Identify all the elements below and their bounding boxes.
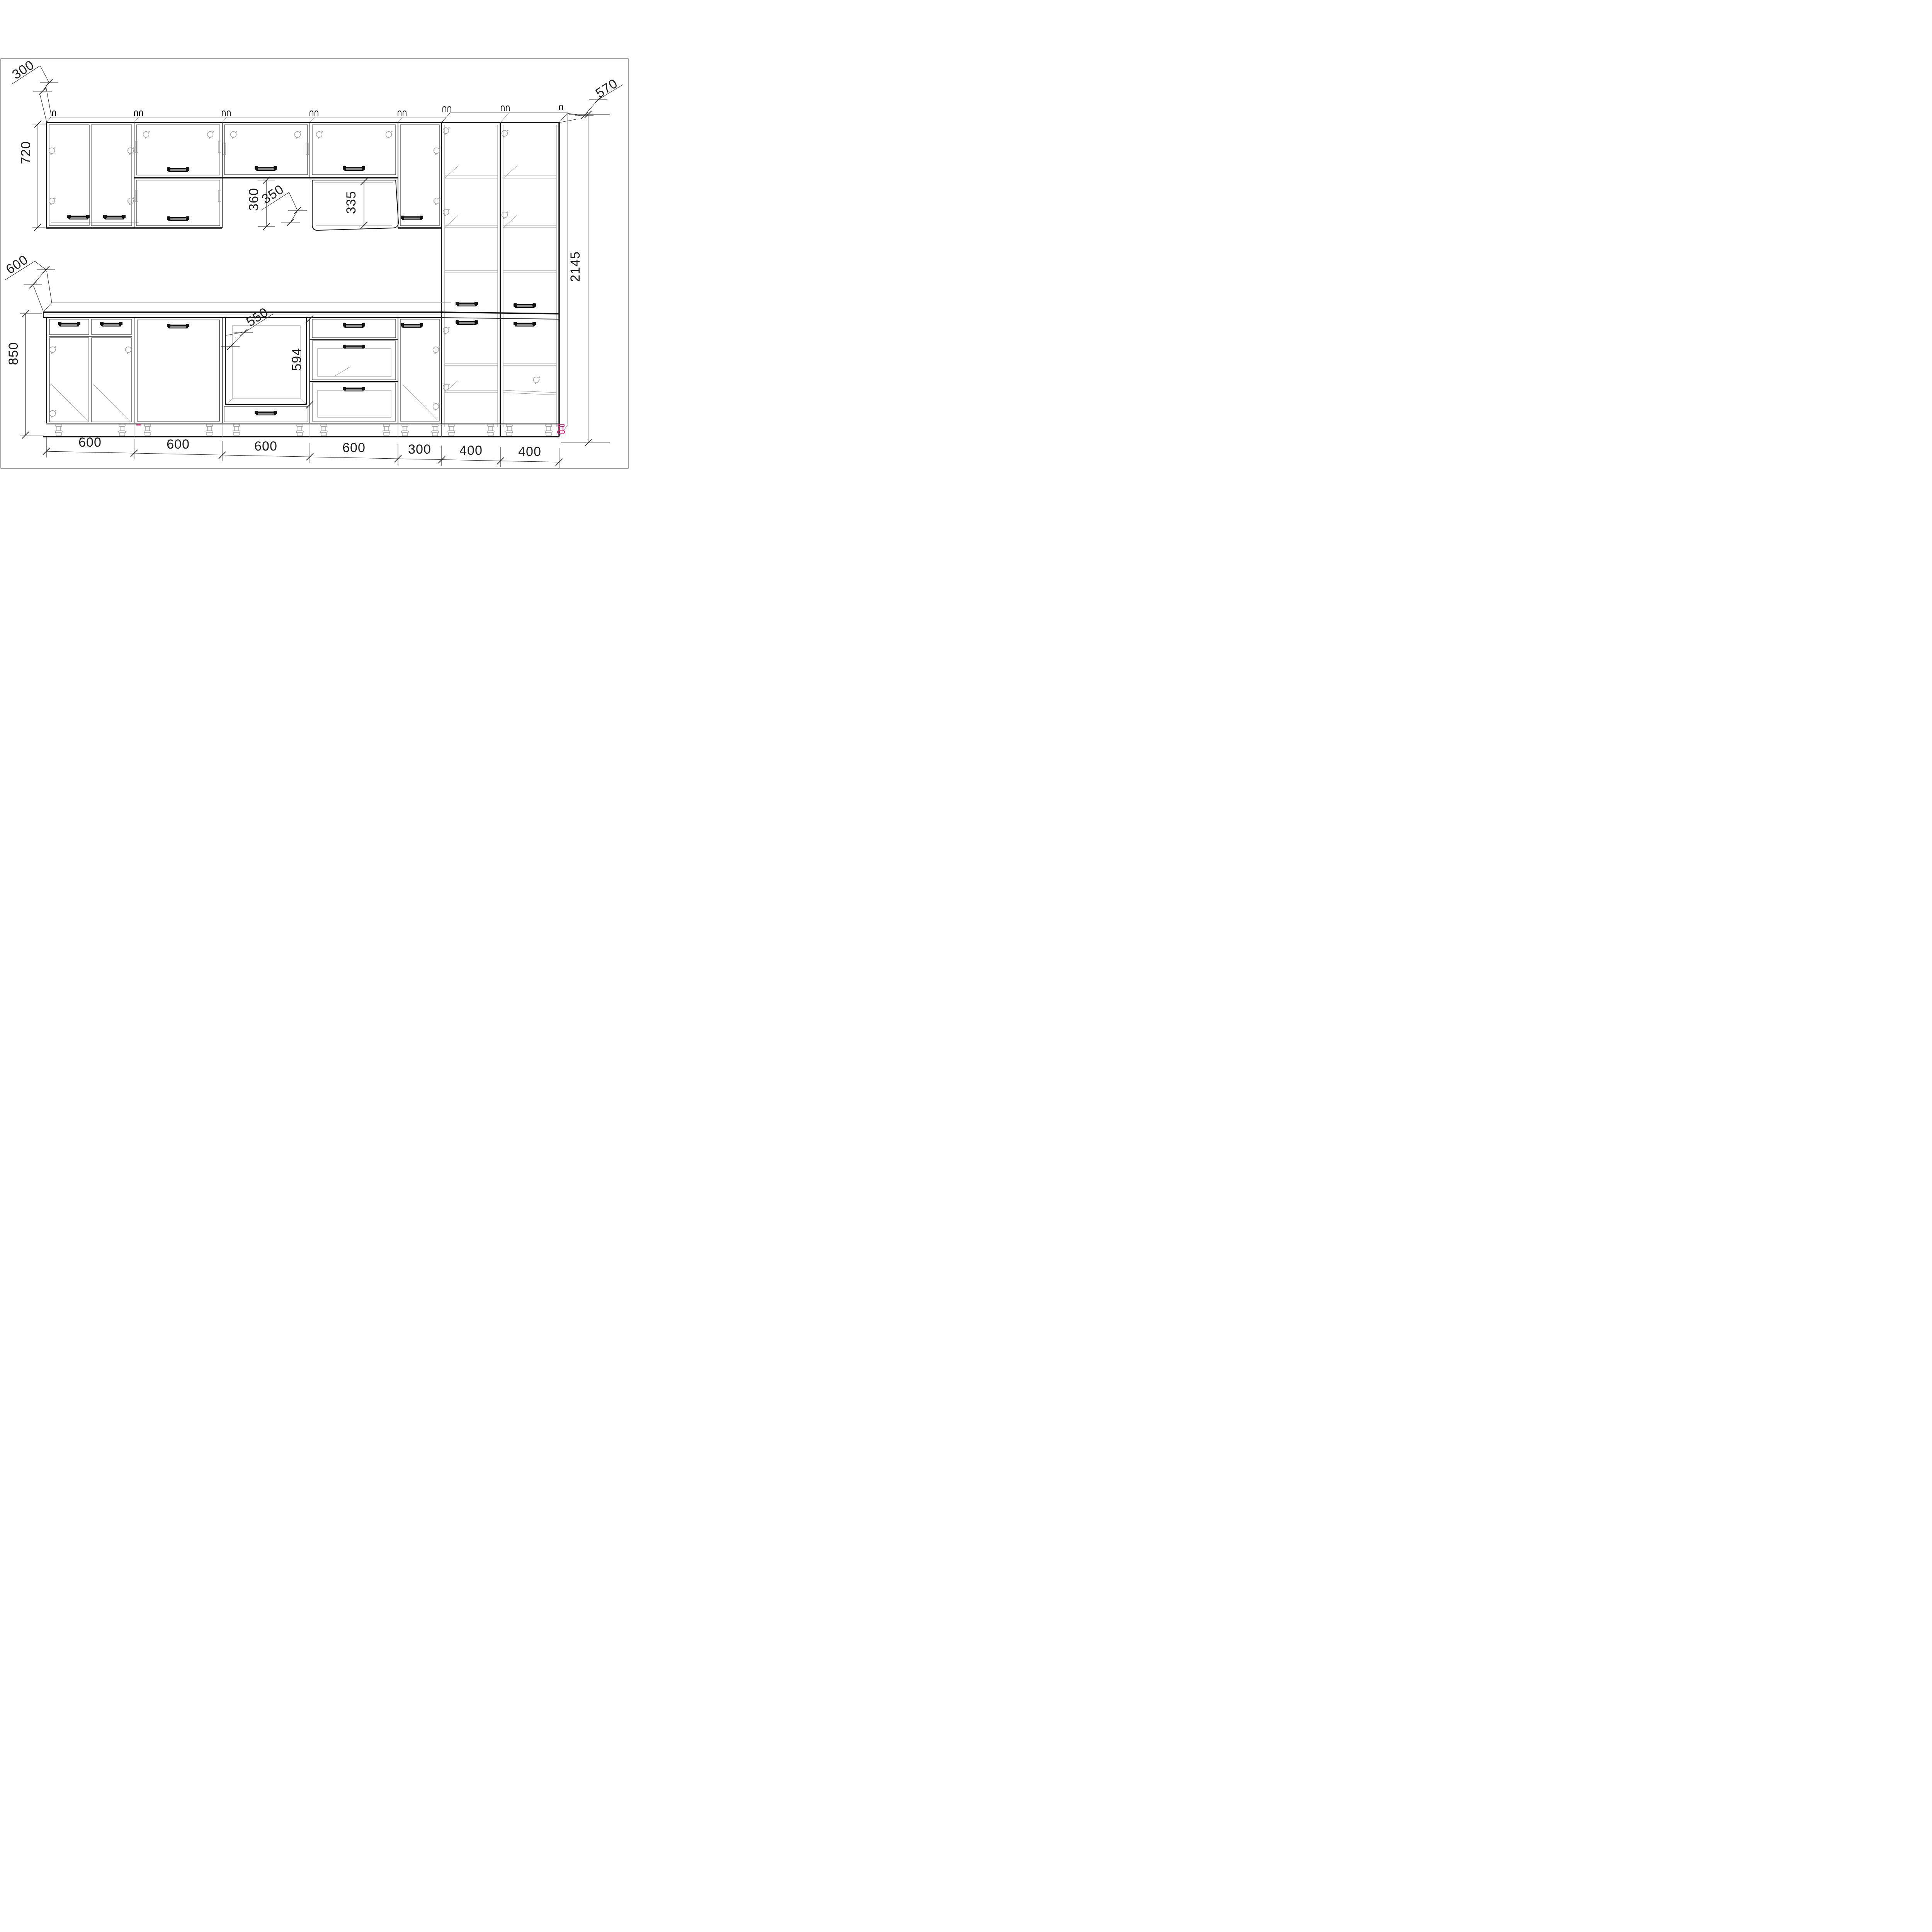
- mounting-hook-icon: [315, 111, 318, 116]
- leg-icon: [506, 424, 513, 436]
- dim-hood-depth: 350: [259, 182, 287, 207]
- hinge-icon: [502, 130, 509, 137]
- hinge-icon: [386, 131, 393, 138]
- door-handle: [103, 215, 126, 219]
- mounting-hook-icon: [222, 111, 225, 116]
- appliance-handle: [167, 324, 189, 328]
- mounting-hook-icon: [506, 106, 509, 111]
- mounting-hook-icon: [448, 107, 451, 112]
- flip-door-handle: [343, 166, 365, 171]
- mounting-hook-icon: [398, 111, 401, 116]
- drawer-handle: [58, 322, 80, 327]
- hinge-icon: [128, 147, 134, 155]
- door-handle: [401, 323, 423, 328]
- flip-door-handle: [255, 166, 277, 171]
- leg-icon: [119, 424, 126, 436]
- dimension-bottom-widths: 600 600 600 600 300 400 400: [43, 435, 563, 468]
- drawing-canvas: 300 720 360 350: [0, 0, 629, 515]
- hinge-icon: [295, 131, 301, 138]
- dim-oven-niche-width: 550: [244, 305, 271, 330]
- tall-unit-2: [502, 122, 568, 437]
- leg-icon: [487, 424, 494, 436]
- base-cabinet-5-narrow: [400, 319, 440, 421]
- flip-door-handle: [167, 167, 189, 172]
- leg-icon: [55, 424, 62, 436]
- base-cabinet-2-dishwasher: [136, 320, 219, 425]
- hinge-icon: [50, 346, 56, 354]
- hinge-icon: [207, 131, 214, 138]
- dimension-base-depth: 600: [3, 252, 55, 311]
- dim-oven-niche-height: 594: [289, 348, 304, 371]
- leg-icon: [383, 424, 390, 436]
- dim-width-3: 600: [254, 439, 277, 454]
- hinge-icon: [231, 131, 237, 138]
- dim-total-height: 2145: [568, 251, 583, 282]
- drawer-handle: [343, 387, 365, 391]
- tall-unit-1: [442, 113, 568, 437]
- dim-width-7: 400: [518, 444, 541, 459]
- hinge-icon: [143, 131, 150, 138]
- tall-door-handle: [514, 303, 536, 308]
- dimension-base-height: 850: [6, 310, 44, 439]
- wall-cabinet-3-hood: [222, 122, 398, 178]
- hinge-icon: [433, 403, 440, 410]
- hinge-icon: [502, 211, 509, 219]
- mounting-hook-icon: [134, 111, 138, 116]
- dim-flip-door-height: 335: [344, 191, 359, 214]
- door-handle: [401, 216, 423, 220]
- base-cabinet-4-drawers: [310, 319, 398, 421]
- tall-door-handle: [456, 302, 478, 306]
- dimension-hood-depth: 350: [259, 182, 307, 226]
- mounting-hook-icon: [403, 111, 406, 116]
- dim-width-4: 600: [342, 440, 366, 455]
- mounting-hook-icon: [501, 106, 504, 111]
- wall-cabinet-row: [46, 111, 559, 230]
- dim-hood-gap: 360: [247, 188, 261, 211]
- tall-cabinet-columns: [442, 105, 568, 437]
- dimension-oven-niche-height: 594: [289, 316, 313, 408]
- drawing-frame: [1, 59, 628, 468]
- mounting-hook-icon: [443, 107, 446, 112]
- dimension-total-height: 2145: [561, 111, 610, 446]
- leg-icon: [320, 424, 327, 436]
- dim-wall-depth: 300: [10, 58, 37, 82]
- dim-tall-depth: 570: [593, 76, 621, 101]
- hinge-icon: [443, 127, 450, 134]
- flip-door-handle: [167, 216, 189, 221]
- dim-width-2: 600: [167, 437, 190, 452]
- mounting-hook-icon: [227, 111, 230, 116]
- dim-wall-height: 720: [19, 141, 33, 164]
- hinge-icon: [50, 410, 56, 417]
- hinge-icon: [126, 346, 132, 354]
- technical-drawing: 300 720 360 350: [0, 0, 629, 515]
- dim-base-height: 850: [6, 342, 21, 365]
- leg-icon: [432, 424, 439, 436]
- leg-icon: [144, 424, 151, 436]
- dimension-oven-niche-width: 550: [221, 305, 273, 350]
- base-cabinet-1-doors-drawer: [49, 319, 132, 422]
- drawer-handle: [100, 322, 122, 327]
- mounting-hook-icon: [53, 111, 56, 116]
- hinge-icon: [443, 209, 450, 216]
- leg-icon: [233, 424, 240, 436]
- plinth: [43, 424, 559, 437]
- dimension-tall-depth: 570: [559, 76, 623, 122]
- leg-icon: [206, 424, 213, 436]
- hinge-icon: [316, 131, 323, 138]
- mounting-hook-icon: [560, 105, 563, 110]
- mounting-hook-icon: [310, 111, 313, 116]
- hinge-icon: [433, 346, 440, 354]
- wall-cabinet-2-flip-doors: [134, 122, 222, 228]
- wall-cabinet-5-narrow: [398, 122, 442, 228]
- tall-door-handle: [514, 322, 536, 327]
- leg-icon: [448, 424, 455, 436]
- dim-width-6: 400: [459, 443, 483, 458]
- dimension-flip-door-height: 335: [344, 178, 367, 229]
- door-handle: [67, 215, 90, 219]
- drawer-handle: [255, 411, 277, 415]
- leg-icon: [296, 424, 303, 436]
- hinge-icon: [443, 327, 450, 334]
- dim-width-1: 600: [78, 435, 102, 450]
- dimension-wall-height: 720: [19, 121, 46, 231]
- mounting-hook-icon: [139, 111, 143, 116]
- leg-icon: [401, 424, 408, 436]
- dimension-wall-depth: 300: [10, 58, 58, 122]
- dim-width-5: 300: [408, 442, 431, 457]
- hinge-icon: [534, 376, 540, 384]
- drawer-handle: [343, 323, 365, 328]
- hinge-icon: [49, 147, 56, 155]
- hinge-icon: [49, 197, 56, 205]
- dim-base-depth: 600: [3, 252, 31, 277]
- hinge-icon: [128, 197, 134, 205]
- leg-icon: [545, 424, 552, 436]
- tall-door-handle: [456, 320, 478, 325]
